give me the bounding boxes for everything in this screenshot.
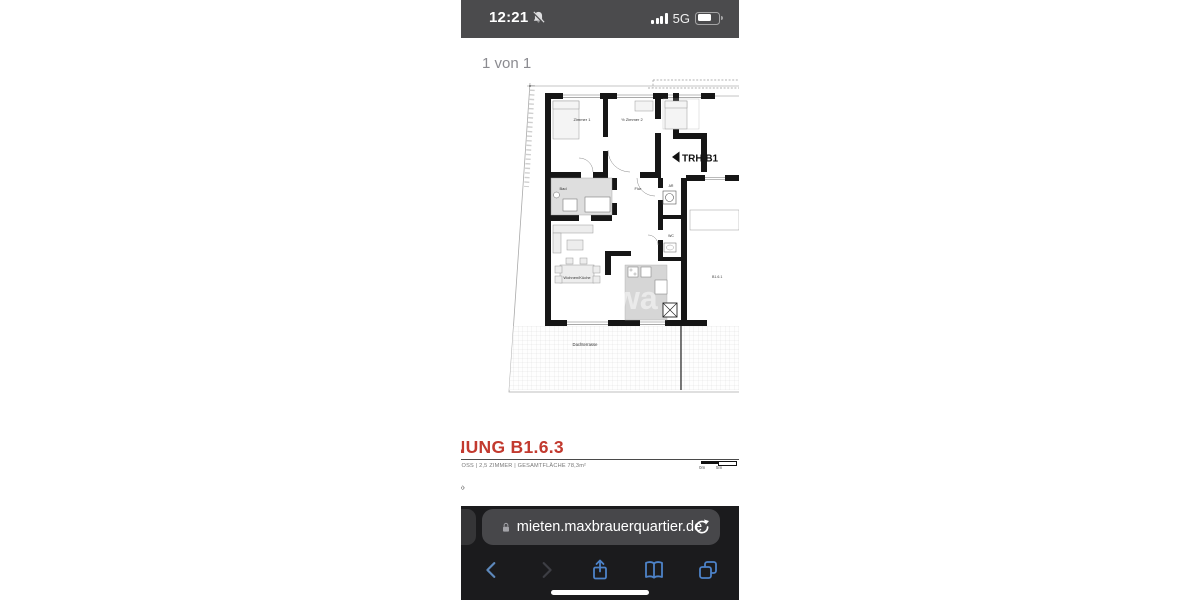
pdf-page[interactable]: wa Zimmer 1 ½ Zimmer 2 Bad Flur AR WC Wo… bbox=[505, 75, 739, 400]
stairwell-label: TRH B1 bbox=[682, 154, 719, 165]
room-label-wohnen-kueche: Wohnen/Küche bbox=[563, 275, 591, 280]
tabs-icon bbox=[696, 558, 720, 582]
book-icon bbox=[642, 558, 666, 582]
chevron-left-icon bbox=[487, 563, 494, 577]
battery-icon bbox=[695, 12, 720, 26]
bathroom-fixtures bbox=[551, 178, 612, 215]
adjacent-room-outline bbox=[690, 210, 739, 230]
room-label-dachterrasse: Dachterrasse bbox=[573, 342, 599, 347]
phone-screenshot: 12:21 5G 1 von 1 bbox=[461, 0, 739, 600]
bell-slash-icon bbox=[531, 10, 546, 25]
scale-label-0: 0m bbox=[699, 465, 705, 470]
safari-bottom-bar: mieten.maxbrauerquartier.de bbox=[461, 506, 739, 600]
stairwell-label-group: TRH B1 bbox=[672, 152, 719, 165]
utility-fixtures bbox=[663, 191, 676, 252]
pdf-page-indicator: 1 von 1 bbox=[482, 55, 531, 72]
lock-icon bbox=[500, 521, 512, 534]
room-label-zimmer2: ½ Zimmer 2 bbox=[621, 117, 643, 122]
room-label-ar: AR bbox=[669, 184, 674, 188]
share-button[interactable] bbox=[585, 555, 615, 585]
share-icon bbox=[588, 558, 612, 582]
url-text: mieten.maxbrauerquartier.de bbox=[517, 519, 702, 535]
browser-toolbar bbox=[461, 549, 739, 591]
home-indicator[interactable] bbox=[551, 590, 649, 595]
room-label-flur: Flur bbox=[635, 186, 643, 191]
clipped-text-glyph: » bbox=[461, 482, 465, 494]
room-label-zimmer1: Zimmer 1 bbox=[574, 117, 592, 122]
listing-title: WOHNUNG B1.6.3 bbox=[461, 437, 564, 458]
status-bar: 12:21 5G bbox=[461, 0, 739, 38]
watermark-text: wa bbox=[614, 280, 658, 316]
adjacent-tab-pill[interactable] bbox=[461, 509, 476, 545]
room-label-wc: WC bbox=[668, 234, 674, 238]
room-label-bad: Bad bbox=[559, 186, 566, 191]
bookmarks-button[interactable] bbox=[639, 555, 669, 585]
tabs-button[interactable] bbox=[693, 555, 723, 585]
scale-label-1: 5m bbox=[716, 465, 722, 470]
reload-icon[interactable] bbox=[693, 518, 711, 536]
left-arrow-icon bbox=[672, 152, 680, 163]
chevron-right-icon bbox=[544, 563, 551, 577]
listing-details: DACHGESCHOSS | 2,5 ZIMMER | GESAMTFLÄCHE… bbox=[461, 463, 586, 469]
terrace bbox=[509, 326, 739, 390]
scale-bar: 0m 5m bbox=[701, 461, 737, 471]
url-bar[interactable]: mieten.maxbrauerquartier.de bbox=[482, 509, 720, 545]
forward-button[interactable] bbox=[531, 555, 561, 585]
back-button[interactable] bbox=[477, 555, 507, 585]
floor-plan-drawing: wa Zimmer 1 ½ Zimmer 2 Bad Flur AR WC Wo… bbox=[505, 75, 739, 400]
signal-bars-icon bbox=[651, 13, 668, 24]
network-label: 5G bbox=[673, 11, 690, 26]
unit-number-label: B1.6.1 bbox=[712, 275, 722, 279]
status-time: 12:21 bbox=[489, 9, 528, 26]
divider-line bbox=[461, 459, 739, 460]
